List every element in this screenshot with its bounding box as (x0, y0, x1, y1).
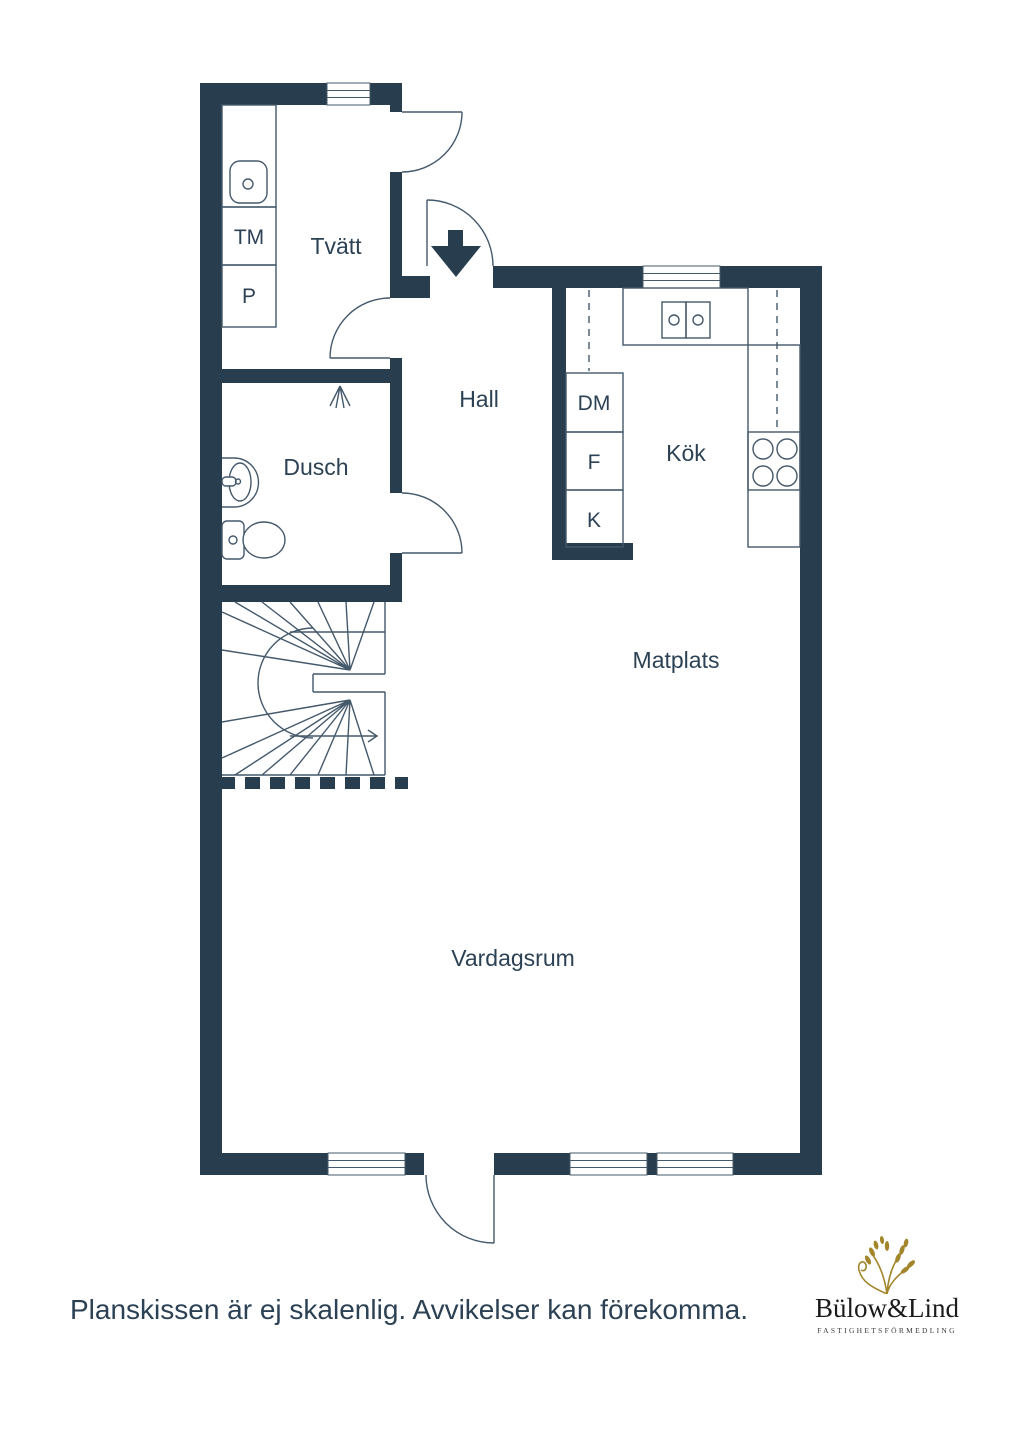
stair-treads-lower (222, 700, 374, 775)
wall-dusch-bottom (200, 585, 402, 602)
bathroom-sink-icon (222, 458, 259, 507)
door-living-room-exterior (426, 1175, 494, 1243)
walls (200, 83, 822, 1175)
entrance-arrow-icon (431, 230, 481, 277)
appliance-label-f: F (588, 451, 601, 474)
stair-slot (313, 674, 385, 692)
door-opening-bottom (424, 1153, 494, 1175)
appliance-label-tm: TM (234, 226, 264, 249)
wall-dusch-right-lower (390, 553, 402, 585)
wall-tvatt-right-upper (390, 83, 402, 112)
room-label-vardagsrum: Vardagsrum (451, 945, 575, 971)
logo-name: Bülow&Lind (812, 1295, 962, 1322)
wall-kitchen-stub (552, 543, 633, 560)
staircase (222, 602, 385, 775)
appliance-label-dm: DM (578, 392, 611, 415)
room-label-hall: Hall (459, 386, 499, 412)
window-kitchen-top (643, 266, 720, 288)
room-label-matplats: Matplats (633, 647, 720, 673)
door-tvatt-hall (330, 298, 390, 358)
floor-plan: Tvätt Dusch Hall Kök Matplats Vardagsrum… (0, 0, 1024, 1448)
window-bottom-middle (570, 1153, 647, 1175)
stove-icon (748, 432, 800, 490)
stair-treads-upper (222, 602, 385, 670)
disclaimer-text: Planskissen är ej skalenlig. Avvikelser … (70, 1294, 748, 1326)
kitchen-sink-icon (662, 302, 710, 338)
floor-plan-page: Tvätt Dusch Hall Kök Matplats Vardagsrum… (0, 0, 1024, 1448)
wall-right-outer (800, 266, 822, 1175)
room-label-kok: Kök (666, 440, 706, 466)
laundry-sink-icon (230, 161, 267, 203)
wheat-ornament-icon (812, 1236, 962, 1294)
wall-kitchen-left (552, 288, 566, 560)
wall-dusch-right-upper (390, 383, 402, 493)
stair-boundary-dashes (220, 777, 408, 789)
windows (327, 83, 733, 1175)
stair-curve (258, 628, 313, 738)
window-bottom-left (328, 1153, 405, 1175)
room-label-tvatt: Tvätt (310, 233, 362, 259)
room-label-dusch: Dusch (283, 454, 348, 480)
shower-icon (330, 386, 350, 408)
wall-tvatt-dusch-divider (200, 369, 402, 383)
window-bottom-right (657, 1153, 733, 1175)
wall-top-outer (200, 83, 402, 105)
appliance-label-p: P (242, 285, 256, 308)
kitchen-fixtures (566, 288, 800, 547)
logo-tagline: FASTIGHETSFÖRMEDLING (812, 1326, 962, 1335)
wall-entry-ledge (390, 276, 430, 298)
door-dusch (402, 493, 462, 553)
door-tvatt-exterior (402, 112, 462, 172)
toilet-icon (222, 521, 285, 559)
appliance-label-k: K (587, 509, 601, 532)
wall-left-outer (200, 83, 222, 1175)
window-tvatt-top (327, 83, 370, 105)
broker-logo: Bülow&Lind FASTIGHETSFÖRMEDLING (812, 1236, 962, 1335)
kitchen-counter-right (748, 345, 800, 547)
